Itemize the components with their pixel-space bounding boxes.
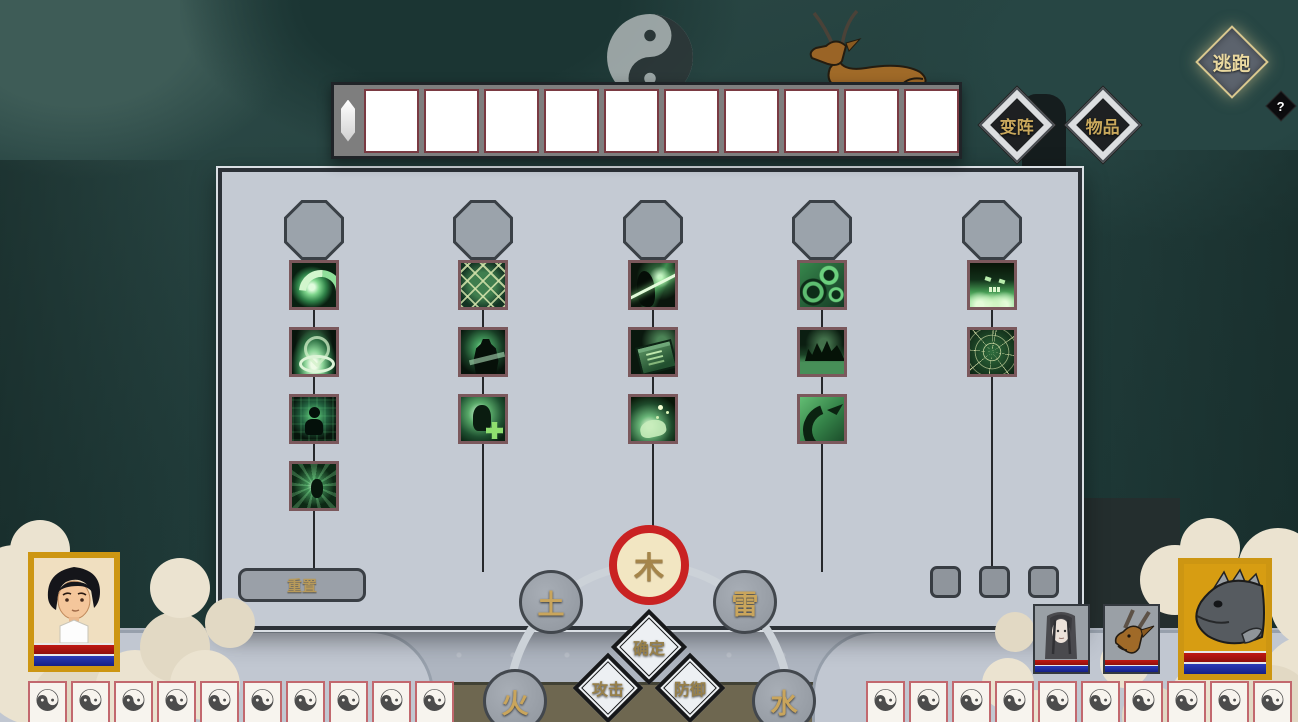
skill-node[interactable]	[289, 327, 339, 377]
goat-portrait-art	[1105, 606, 1158, 659]
element-water-label: 水	[771, 682, 798, 721]
yin-yang-icon: ☯	[292, 683, 319, 721]
element-earth-button[interactable]: 土	[519, 570, 583, 634]
formation-slot[interactable]	[904, 89, 959, 153]
element-thunder-label: 雷	[732, 583, 759, 622]
yin-yang-icon: ☯	[1044, 683, 1071, 721]
ally-status-bars	[1035, 660, 1088, 673]
yin-yang-icon: ☯	[872, 683, 899, 721]
confirm-label: 确定	[633, 635, 665, 659]
formation-slot[interactable]	[544, 89, 599, 153]
spirit-mandala-icon	[292, 464, 336, 508]
talisman: ☯	[1210, 681, 1249, 722]
talisman: ☯	[1253, 681, 1292, 722]
young-man-portrait-art	[34, 558, 114, 643]
element-wood-label: 木	[634, 543, 664, 587]
formation-slot[interactable]	[844, 89, 899, 153]
skill-node[interactable]	[458, 394, 508, 444]
reset-button[interactable]: 重置	[238, 568, 366, 602]
empty-square-slot[interactable]	[930, 566, 961, 598]
green-dragon-icon	[800, 397, 844, 441]
yin-yang-icon: ☯	[1130, 683, 1157, 721]
skill-node[interactable]	[289, 461, 339, 511]
skill-column-3	[621, 200, 685, 444]
enemy-status-bars	[1184, 651, 1266, 674]
talisman: ☯	[243, 681, 282, 722]
yin-yang-icon: ☯	[1001, 683, 1028, 721]
beast-horde-icon	[800, 330, 844, 374]
jade-net-icon	[461, 263, 505, 307]
talisman: ☯	[415, 681, 454, 722]
change-formation-label: 变阵	[1000, 113, 1034, 138]
player-mp-bar	[34, 656, 114, 666]
formation-slots	[364, 89, 959, 153]
empty-square-slot[interactable]	[1028, 566, 1059, 598]
skill-node[interactable]	[967, 260, 1017, 310]
resting-goat-decoration	[782, 8, 937, 93]
formation-slot[interactable]	[784, 89, 839, 153]
element-wood-button[interactable]: 木	[609, 525, 689, 605]
skill-node[interactable]	[797, 260, 847, 310]
battle-skill-screen: 变阵 物品 逃跑 ?	[0, 0, 1298, 722]
gem-icon	[341, 100, 355, 142]
skill-node[interactable]	[967, 327, 1017, 377]
yin-yang-icon: ☯	[120, 683, 147, 721]
items-button[interactable]: 物品	[1065, 87, 1141, 163]
octagon-node[interactable]	[623, 200, 683, 260]
talisman: ☯	[286, 681, 325, 722]
formation-bar	[331, 82, 962, 159]
skill-column-4	[790, 200, 854, 444]
ally-portrait-woman[interactable]	[1033, 604, 1090, 674]
defend-label: 防御	[674, 676, 706, 700]
player-talisman-row: ☯ ☯ ☯ ☯ ☯ ☯ ☯ ☯ ☯ ☯	[28, 681, 454, 722]
talisman: ☯	[866, 681, 905, 722]
formation-slot[interactable]	[664, 89, 719, 153]
skill-column-5	[960, 200, 1024, 377]
shadow-strike-icon	[631, 263, 675, 307]
octagon-node[interactable]	[453, 200, 513, 260]
yin-yang-icon: ☯	[77, 683, 104, 721]
empty-slot-row	[930, 566, 1059, 598]
skill-node[interactable]	[797, 327, 847, 377]
octagon-node[interactable]	[284, 200, 344, 260]
help-button[interactable]: ?	[1265, 90, 1296, 121]
yin-yang-icon: ☯	[206, 683, 233, 721]
octagon-node-face	[965, 203, 1019, 257]
spirit-hand-icon	[631, 397, 675, 441]
background-rock	[0, 0, 300, 180]
element-earth-label: 土	[538, 583, 565, 622]
skill-node[interactable]	[628, 260, 678, 310]
escape-button[interactable]: 逃跑	[1195, 25, 1269, 99]
strong-body-icon	[461, 330, 505, 374]
talisman: ☯	[329, 681, 368, 722]
yin-yang-icon: ☯	[1216, 683, 1243, 721]
yin-yang-icon: ☯	[335, 683, 362, 721]
enemy-mp-bar	[1184, 664, 1266, 674]
talisman: ☯	[909, 681, 948, 722]
element-fire-label: 火	[502, 682, 529, 721]
enemy-portrait[interactable]	[1178, 558, 1272, 680]
ally-status-bars	[1105, 660, 1158, 673]
enemy-hp-bar	[1184, 653, 1266, 662]
element-thunder-button[interactable]: 雷	[713, 570, 777, 634]
skill-column-1	[282, 200, 346, 511]
formation-slot[interactable]	[724, 89, 779, 153]
formation-slot[interactable]	[364, 89, 419, 153]
yin-yang-icon: ☯	[249, 683, 276, 721]
formation-slot[interactable]	[424, 89, 479, 153]
yin-yang-icon: ☯	[163, 683, 190, 721]
enemy-talisman-row: ☯ ☯ ☯ ☯ ☯ ☯ ☯ ☯ ☯ ☯	[866, 681, 1292, 722]
octagon-node-face	[626, 203, 680, 257]
yin-yang-icon: ☯	[34, 683, 61, 721]
skill-node[interactable]	[458, 260, 508, 310]
ally-mp-bar	[1035, 666, 1088, 672]
attack-label: 攻击	[592, 676, 624, 700]
skill-node[interactable]	[628, 394, 678, 444]
octagon-node[interactable]	[962, 200, 1022, 260]
talisman: ☯	[200, 681, 239, 722]
cloud-decoration	[205, 598, 255, 648]
ally-mp-bar	[1105, 666, 1158, 672]
octagon-node-face	[287, 203, 341, 257]
talisman: ☯	[1081, 681, 1120, 722]
skill-column-2	[451, 200, 515, 444]
heal-cross-icon	[461, 397, 505, 441]
talisman: ☯	[995, 681, 1034, 722]
talisman: ☯	[372, 681, 411, 722]
peacock-eyes-icon	[800, 263, 844, 307]
demon-flame-icon	[970, 263, 1014, 307]
pale-woman-portrait-art	[1035, 606, 1088, 659]
green-swirl-slash-icon	[292, 263, 336, 307]
skill-node[interactable]	[289, 260, 339, 310]
player-hp-bar	[34, 645, 114, 654]
yin-yang-icon: ☯	[1087, 683, 1114, 721]
talisman: ☯	[1124, 681, 1163, 722]
skill-node[interactable]	[458, 327, 508, 377]
formation-slot[interactable]	[484, 89, 539, 153]
talisman: ☯	[157, 681, 196, 722]
player-status-bars	[34, 643, 114, 666]
cloud-decoration	[150, 558, 210, 618]
skill-node[interactable]	[797, 394, 847, 444]
escape-label: 逃跑	[1213, 48, 1251, 75]
talisman: ☯	[114, 681, 153, 722]
lotus-ring-icon	[292, 330, 336, 374]
talisman: ☯	[952, 681, 991, 722]
meditating-figure-icon	[292, 397, 336, 441]
spirit-web-icon	[970, 330, 1014, 374]
yin-yang-icon: ☯	[915, 683, 942, 721]
talisman: ☯	[1167, 681, 1206, 722]
empty-square-slot[interactable]	[979, 566, 1010, 598]
yin-yang-icon: ☯	[958, 683, 985, 721]
talisman: ☯	[1038, 681, 1077, 722]
ally-portrait-goat[interactable]	[1103, 604, 1160, 674]
yin-yang-icon: ☯	[1173, 683, 1200, 721]
skill-node[interactable]	[289, 394, 339, 444]
cloud-decoration	[995, 612, 1035, 652]
octagon-node[interactable]	[792, 200, 852, 260]
yin-yang-icon: ☯	[421, 683, 448, 721]
gray-beast-portrait-art	[1184, 564, 1266, 651]
player-portrait[interactable]	[28, 552, 120, 672]
help-icon: ?	[1277, 98, 1285, 113]
items-label: 物品	[1086, 113, 1120, 138]
yin-yang-icon: ☯	[1259, 683, 1286, 721]
yin-yang-icon: ☯	[378, 683, 405, 721]
formation-slot[interactable]	[604, 89, 659, 153]
octagon-node-face	[795, 203, 849, 257]
skill-node[interactable]	[628, 327, 678, 377]
talisman: ☯	[28, 681, 67, 722]
spell-tome-icon	[631, 330, 675, 374]
octagon-node-face	[456, 203, 510, 257]
talisman: ☯	[71, 681, 110, 722]
